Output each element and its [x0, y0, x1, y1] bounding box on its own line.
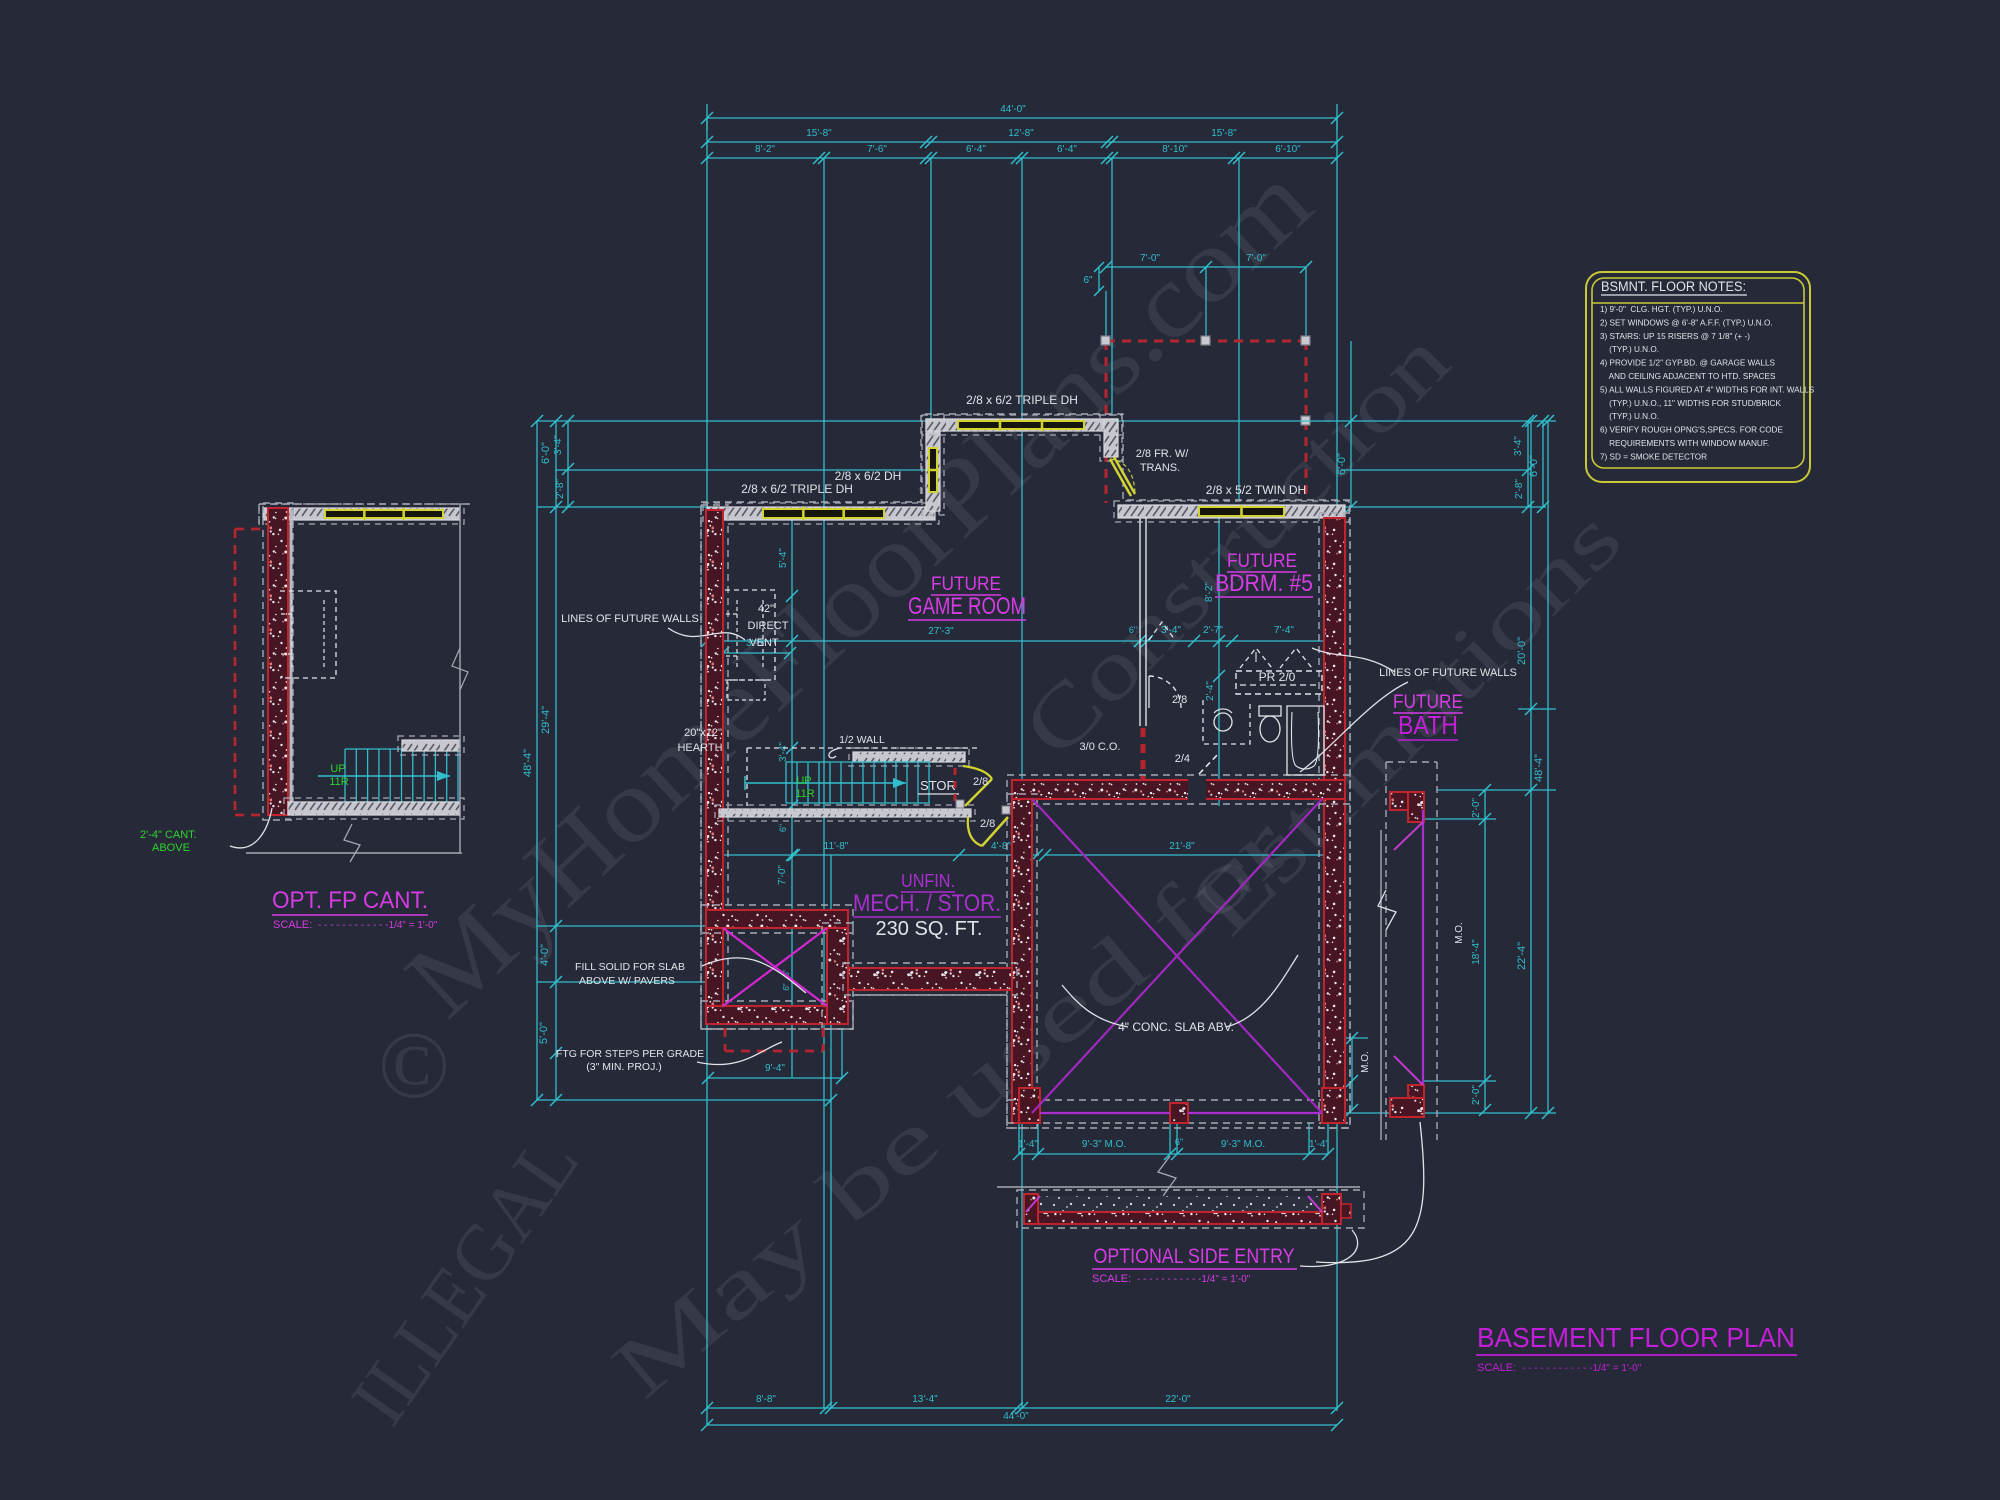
svg-text:18'-4": 18'-4" — [1471, 939, 1482, 965]
svg-text:2/8 x 6/2 DH: 2/8 x 6/2 DH — [835, 469, 902, 483]
svg-text:6'-0": 6'-0" — [1336, 453, 1348, 475]
svg-text:3'-4": 3'-4" — [778, 742, 789, 762]
svg-text:3'-4": 3'-4" — [553, 435, 564, 455]
svg-text:BATH: BATH — [1398, 710, 1458, 740]
svg-text:UP: UP — [330, 763, 345, 775]
svg-text:SCALE:: SCALE: — [1477, 1362, 1516, 1374]
svg-text:11R: 11R — [795, 788, 814, 800]
svg-text:8'-2": 8'-2" — [755, 144, 775, 155]
svg-text:29'-4": 29'-4" — [540, 706, 552, 734]
svg-text:8'-10": 8'-10" — [1162, 144, 1188, 155]
svg-text:13'-4": 13'-4" — [912, 1394, 938, 1405]
svg-text:4) PROVIDE 1/2" GYP.BD. @ GARA: 4) PROVIDE 1/2" GYP.BD. @ GARAGE WALLS — [1600, 359, 1776, 368]
svg-text:44'-0": 44'-0" — [1000, 104, 1026, 115]
svg-text:SCALE:: SCALE: — [273, 919, 312, 931]
svg-text:DIRECT: DIRECT — [748, 620, 789, 632]
svg-text:2'-4" CANT.: 2'-4" CANT. — [140, 829, 197, 841]
svg-text:FUTURE: FUTURE — [1227, 551, 1297, 572]
svg-text:6": 6" — [1129, 625, 1137, 635]
svg-text:2) SET WINDOWS @ 6'-8" A.F.F.: 2) SET WINDOWS @ 6'-8" A.F.F. (TYP.) U.N… — [1600, 318, 1773, 327]
svg-text:12'-8": 12'-8" — [1008, 128, 1034, 139]
svg-text:1'-4": 1'-4" — [1309, 1139, 1329, 1150]
svg-text:6'-4": 6'-4" — [966, 144, 986, 155]
svg-text:AND CEILING ADJACENT TO HTD. S: AND CEILING ADJACENT TO HTD. SPACES — [1600, 372, 1776, 381]
svg-text:(TYP.) U.N.O.: (TYP.) U.N.O. — [1600, 412, 1659, 421]
svg-text:- - - - - - - - - - -1/4" = 1': - - - - - - - - - - -1/4" = 1'-0" — [1137, 1274, 1251, 1285]
svg-text:5'-4": 5'-4" — [778, 548, 789, 568]
svg-text:2'-4": 2'-4" — [1205, 681, 1216, 701]
svg-text:11'-8": 11'-8" — [824, 841, 849, 852]
svg-text:20"x12": 20"x12" — [684, 727, 722, 739]
svg-text:20'-0": 20'-0" — [1516, 637, 1528, 665]
svg-text:UP: UP — [796, 775, 811, 787]
svg-text:9'-3" M.O.: 9'-3" M.O. — [1221, 1139, 1265, 1150]
svg-text:©: © — [378, 1012, 450, 1118]
svg-text:6'-10": 6'-10" — [1275, 144, 1301, 155]
svg-text:44'-0": 44'-0" — [1003, 1411, 1029, 1422]
svg-text:7) SD = SMOKE DETECTOR: 7) SD = SMOKE DETECTOR — [1600, 452, 1707, 461]
svg-text:M.O.: M.O. — [1454, 922, 1465, 944]
svg-text:48'-4": 48'-4" — [1533, 754, 1545, 782]
svg-text:1'-4": 1'-4" — [1018, 1139, 1038, 1150]
svg-text:3) STAIRS: UP 15 RISERS @ 7 1/: 3) STAIRS: UP 15 RISERS @ 7 1/8" (+ -) — [1600, 332, 1750, 341]
svg-text:7'-6": 7'-6" — [867, 144, 887, 155]
svg-text:6": 6" — [1175, 1137, 1183, 1147]
svg-text:6) VERIFY ROUGH OPNG'S,SPECS.: 6) VERIFY ROUGH OPNG'S,SPECS. FOR CODE — [1600, 426, 1783, 435]
svg-text:FUTURE: FUTURE — [931, 574, 1001, 595]
svg-text:(3" MIN. PROJ.): (3" MIN. PROJ.) — [586, 1061, 661, 1073]
svg-text:7'-0": 7'-0" — [777, 865, 788, 885]
svg-text:9'-4": 9'-4" — [765, 1063, 785, 1074]
svg-text:- - - - - - - - - - - -1/4" =: - - - - - - - - - - - -1/4" = 1'-0" — [318, 920, 438, 931]
svg-text:- - - - - - - - - - - -1/4" =: - - - - - - - - - - - -1/4" = 1'-0" — [1522, 1363, 1642, 1374]
svg-text:7'-0": 7'-0" — [1246, 253, 1266, 264]
svg-text:ABOVE W/ PAVERS: ABOVE W/ PAVERS — [579, 975, 675, 987]
svg-text:15'-8": 15'-8" — [1211, 128, 1237, 139]
svg-text:M.O.: M.O. — [1360, 1051, 1371, 1073]
svg-text:BDRM. #5: BDRM. #5 — [1215, 570, 1313, 597]
svg-text:LINES OF FUTURE WALLS: LINES OF FUTURE WALLS — [1379, 667, 1517, 679]
svg-text:22'-0": 22'-0" — [1165, 1394, 1191, 1405]
svg-text:BSMNT. FLOOR NOTES:: BSMNT. FLOOR NOTES: — [1601, 279, 1746, 294]
svg-text:4'-8": 4'-8" — [991, 841, 1011, 852]
svg-text:2/8: 2/8 — [973, 776, 988, 788]
svg-text:6": 6" — [1083, 275, 1093, 286]
svg-text:3/0 C.O.: 3/0 C.O. — [1080, 741, 1121, 753]
svg-text:2'-0": 2'-0" — [1471, 798, 1482, 818]
svg-text:5) ALL WALLS FIGURED AT 4" WID: 5) ALL WALLS FIGURED AT 4" WIDTHS FOR IN… — [1600, 385, 1815, 394]
svg-text:2'-0": 2'-0" — [1471, 1085, 1482, 1105]
svg-text:2/8 x 5/2 TWIN DH: 2/8 x 5/2 TWIN DH — [1206, 483, 1306, 497]
svg-text:HEARTH: HEARTH — [677, 742, 722, 754]
svg-text:1/2 WALL: 1/2 WALL — [839, 734, 885, 746]
svg-text:STOR: STOR — [920, 778, 956, 793]
svg-text:2'-7": 2'-7" — [1203, 625, 1223, 636]
svg-text:OPTIONAL SIDE ENTRY: OPTIONAL SIDE ENTRY — [1094, 1245, 1295, 1268]
svg-text:4" CONC. SLAB ABV.: 4" CONC. SLAB ABV. — [1118, 1020, 1234, 1034]
svg-text:7'-4": 7'-4" — [1274, 625, 1294, 636]
svg-text:6'-4": 6'-4" — [1057, 144, 1077, 155]
svg-text:15'-8": 15'-8" — [806, 128, 832, 139]
svg-text:REQUIREMENTS WITH WINDOW MANUF: REQUIREMENTS WITH WINDOW MANUF. — [1600, 439, 1769, 448]
svg-text:2/8 x 6/2 TRIPLE DH: 2/8 x 6/2 TRIPLE DH — [741, 482, 853, 496]
svg-text:6'-0": 6'-0" — [540, 442, 552, 464]
svg-text:22'-4": 22'-4" — [1516, 942, 1528, 970]
svg-text:48'-4": 48'-4" — [522, 749, 534, 777]
svg-text:PR 2/0: PR 2/0 — [1259, 670, 1296, 684]
svg-text:2'-8": 2'-8" — [555, 479, 566, 499]
svg-text:6": 6" — [782, 983, 791, 990]
svg-text:(TYP.) U.N.O., 11" WIDTHS FOR: (TYP.) U.N.O., 11" WIDTHS FOR STUD/BRICK — [1600, 399, 1781, 408]
svg-text:2'-8": 2'-8" — [1514, 479, 1525, 499]
svg-text:2/8: 2/8 — [1172, 694, 1187, 706]
svg-text:230 SQ. FT.: 230 SQ. FT. — [876, 918, 983, 940]
svg-text:5'-0": 5'-0" — [538, 1022, 550, 1044]
svg-text:TRANS.: TRANS. — [1140, 462, 1180, 474]
svg-text:FTG FOR STEPS PER GRADE: FTG FOR STEPS PER GRADE — [556, 1048, 704, 1060]
svg-text:ABOVE: ABOVE — [152, 842, 190, 854]
svg-text:2/8 x 6/2 TRIPLE DH: 2/8 x 6/2 TRIPLE DH — [966, 393, 1078, 407]
svg-text:8'-8": 8'-8" — [756, 1394, 776, 1405]
svg-text:SCALE:: SCALE: — [1092, 1273, 1131, 1285]
svg-text:MECH. / STOR.: MECH. / STOR. — [853, 890, 1001, 917]
svg-text:(TYP.) U.N.O.: (TYP.) U.N.O. — [1600, 345, 1659, 354]
svg-text:6'-0": 6'-0" — [1528, 455, 1540, 477]
svg-text:4'-0": 4'-0" — [539, 944, 551, 966]
svg-text:6": 6" — [778, 824, 788, 832]
svg-text:2/8 FR. W/: 2/8 FR. W/ — [1136, 448, 1190, 460]
svg-text:7'-0": 7'-0" — [1140, 253, 1160, 264]
svg-text:27'-3": 27'-3" — [928, 626, 954, 637]
svg-text:8'-2": 8'-2" — [1204, 582, 1215, 602]
svg-text:LINES OF FUTURE WALLS: LINES OF FUTURE WALLS — [561, 613, 699, 625]
svg-text:42": 42" — [758, 603, 774, 615]
svg-text:GAME ROOM: GAME ROOM — [908, 593, 1026, 620]
svg-text:21'-8": 21'-8" — [1169, 841, 1195, 852]
svg-text:UNFIN.: UNFIN. — [901, 871, 955, 891]
svg-text:2/8: 2/8 — [980, 818, 995, 830]
svg-text:BASEMENT FLOOR PLAN: BASEMENT FLOOR PLAN — [1477, 1322, 1795, 1353]
svg-text:2/4: 2/4 — [1175, 753, 1190, 765]
svg-text:11R: 11R — [329, 776, 348, 788]
svg-text:VENT: VENT — [749, 637, 779, 649]
svg-text:1) 9'-0" CLG. HGT. (TYP.) U.N: 1) 9'-0" CLG. HGT. (TYP.) U.N.O. — [1600, 305, 1723, 314]
svg-text:FILL SOLID FOR SLAB: FILL SOLID FOR SLAB — [575, 961, 685, 973]
svg-text:9'-3" M.O.: 9'-3" M.O. — [1082, 1139, 1126, 1150]
svg-text:3'-4": 3'-4" — [1513, 436, 1524, 456]
svg-text:OPT. FP CANT.: OPT. FP CANT. — [272, 887, 428, 914]
